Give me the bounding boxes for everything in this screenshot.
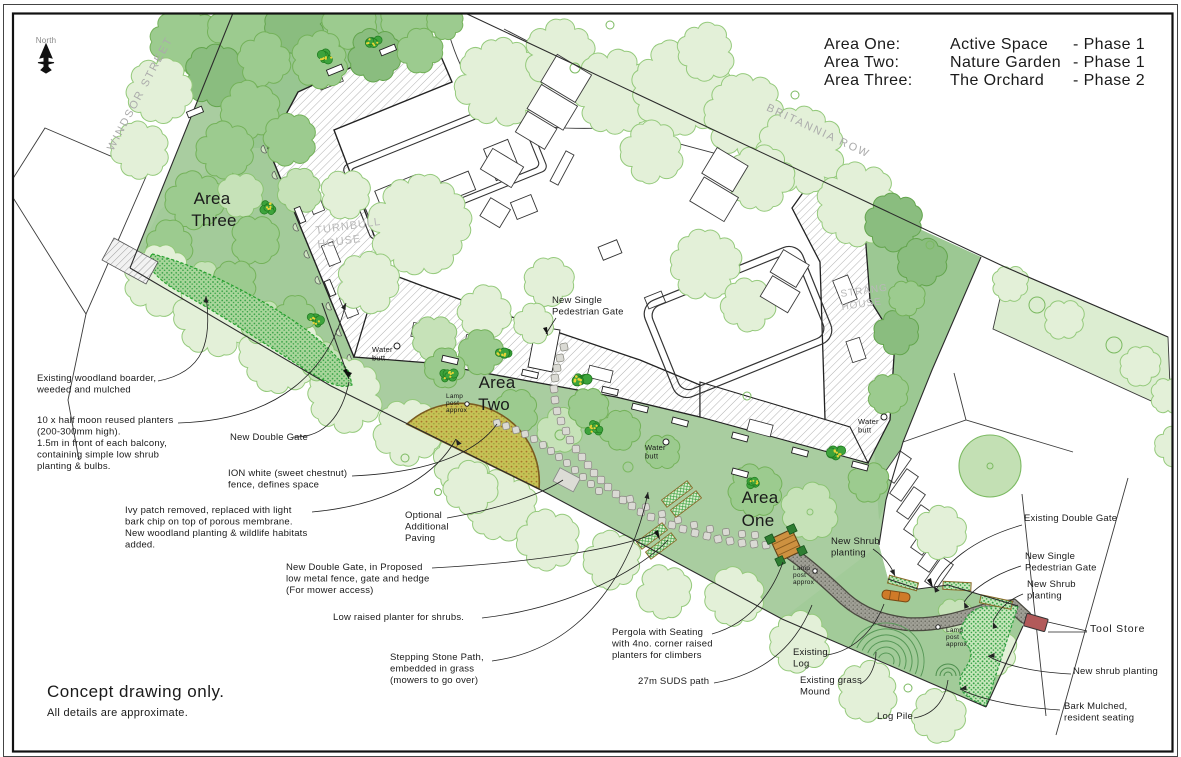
svg-text:with 4no. corner raised: with 4no. corner raised (611, 639, 713, 650)
svg-text:post: post (793, 572, 806, 579)
svg-text:Lamp: Lamp (446, 393, 463, 400)
svg-text:Log Pile: Log Pile (877, 711, 913, 722)
svg-text:Existing woodland boarder,: Existing woodland boarder, (37, 373, 156, 384)
svg-text:10 x half moon reused planters: 10 x half moon reused planters (37, 415, 173, 426)
svg-text:Area One:: Area One: (824, 36, 901, 53)
svg-text:New woodland planting & wildli: New woodland planting & wildlife habitat… (125, 528, 308, 539)
svg-text:Area Two:: Area Two: (824, 54, 899, 71)
svg-text:Mound: Mound (800, 687, 830, 698)
svg-text:(200-300mm high).: (200-300mm high). (37, 427, 121, 438)
svg-text:Ivy patch removed, replaced wi: Ivy patch removed, replaced with light (125, 505, 292, 516)
svg-text:Optional: Optional (405, 510, 442, 521)
svg-text:New Double Gate: New Double Gate (230, 432, 308, 443)
svg-text:approx: approx (446, 407, 468, 414)
svg-text:Area Three:: Area Three: (824, 72, 913, 89)
svg-text:One: One (742, 511, 775, 530)
svg-text:approx: approx (946, 641, 968, 648)
svg-text:approx: approx (793, 579, 815, 586)
svg-text:1.5m in front of each balcony,: 1.5m in front of each balcony, (37, 438, 167, 449)
svg-text:Additional: Additional (405, 522, 449, 533)
svg-text:All details are approximate.: All details are approximate. (47, 707, 188, 719)
svg-text:Three: Three (191, 211, 236, 230)
svg-text:weeded and mulched: weeded and mulched (36, 385, 131, 396)
svg-text:- Phase 1: - Phase 1 (1073, 54, 1145, 71)
svg-text:New Double Gate, in Proposed: New Double Gate, in Proposed (286, 562, 423, 573)
svg-text:Existing: Existing (793, 647, 828, 658)
svg-text:- Phase 2: - Phase 2 (1073, 72, 1145, 89)
svg-text:post: post (946, 634, 959, 641)
svg-text:ION white (sweet chestnut): ION white (sweet chestnut) (228, 468, 347, 479)
svg-text:butt: butt (372, 354, 386, 363)
svg-text:Existing grass: Existing grass (800, 675, 862, 686)
svg-text:Pergola with Seating: Pergola with Seating (612, 627, 703, 638)
svg-text:planting & bulbs.: planting & bulbs. (37, 461, 111, 472)
svg-text:Two: Two (478, 395, 510, 414)
svg-text:New Shrub: New Shrub (831, 536, 880, 547)
svg-text:- Phase 1: - Phase 1 (1073, 36, 1145, 53)
svg-text:Bark Mulched,: Bark Mulched, (1064, 701, 1127, 712)
svg-text:containing simple low shrub: containing simple low shrub (37, 450, 159, 461)
svg-text:(For mower access): (For mower access) (286, 585, 374, 596)
svg-text:Existing Double Gate: Existing Double Gate (1024, 513, 1117, 524)
svg-text:embedded in grass: embedded in grass (390, 664, 474, 675)
svg-text:post: post (446, 400, 459, 407)
svg-text:Pedestrian Gate: Pedestrian Gate (552, 307, 624, 318)
svg-text:Low raised planter for shrubs.: Low raised planter for shrubs. (333, 612, 464, 623)
svg-text:27m SUDS path: 27m SUDS path (638, 676, 709, 687)
svg-text:Log: Log (793, 659, 809, 670)
svg-text:Area: Area (194, 189, 231, 208)
svg-text:Tool Store: Tool Store (1090, 623, 1145, 635)
svg-text:planters for climbers: planters for climbers (612, 650, 702, 661)
svg-text:planting: planting (1027, 591, 1062, 602)
svg-text:(mowers to go over): (mowers to go over) (390, 675, 478, 686)
svg-text:Pedestrian Gate: Pedestrian Gate (1025, 563, 1097, 574)
svg-text:Paving: Paving (405, 533, 435, 544)
svg-text:Stepping Stone Path,: Stepping Stone Path, (390, 652, 484, 663)
svg-text:Nature Garden: Nature Garden (950, 54, 1061, 71)
svg-text:Concept drawing only.: Concept drawing only. (47, 682, 224, 701)
svg-text:New shrub planting: New shrub planting (1073, 666, 1158, 677)
svg-text:Active Space: Active Space (950, 36, 1048, 53)
svg-text:low metal fence, gate and hedg: low metal fence, gate and hedge (286, 574, 430, 585)
svg-text:added.: added. (125, 540, 155, 551)
svg-text:planting: planting (831, 548, 866, 559)
svg-text:New Single: New Single (1025, 551, 1075, 562)
svg-text:butt: butt (645, 452, 659, 461)
svg-text:bark chip on top of porous mem: bark chip on top of porous membrane. (125, 517, 293, 528)
svg-text:New Single: New Single (552, 295, 602, 306)
svg-text:New Shrub: New Shrub (1027, 579, 1076, 590)
svg-text:The Orchard: The Orchard (950, 72, 1044, 89)
svg-text:Lamp: Lamp (793, 565, 810, 572)
svg-text:Area: Area (479, 373, 516, 392)
svg-text:resident seating: resident seating (1064, 713, 1134, 724)
svg-text:fence, defines space: fence, defines space (228, 480, 319, 491)
svg-text:butt: butt (858, 426, 872, 435)
svg-text:Area: Area (742, 488, 779, 507)
svg-text:Lamp: Lamp (946, 627, 963, 634)
